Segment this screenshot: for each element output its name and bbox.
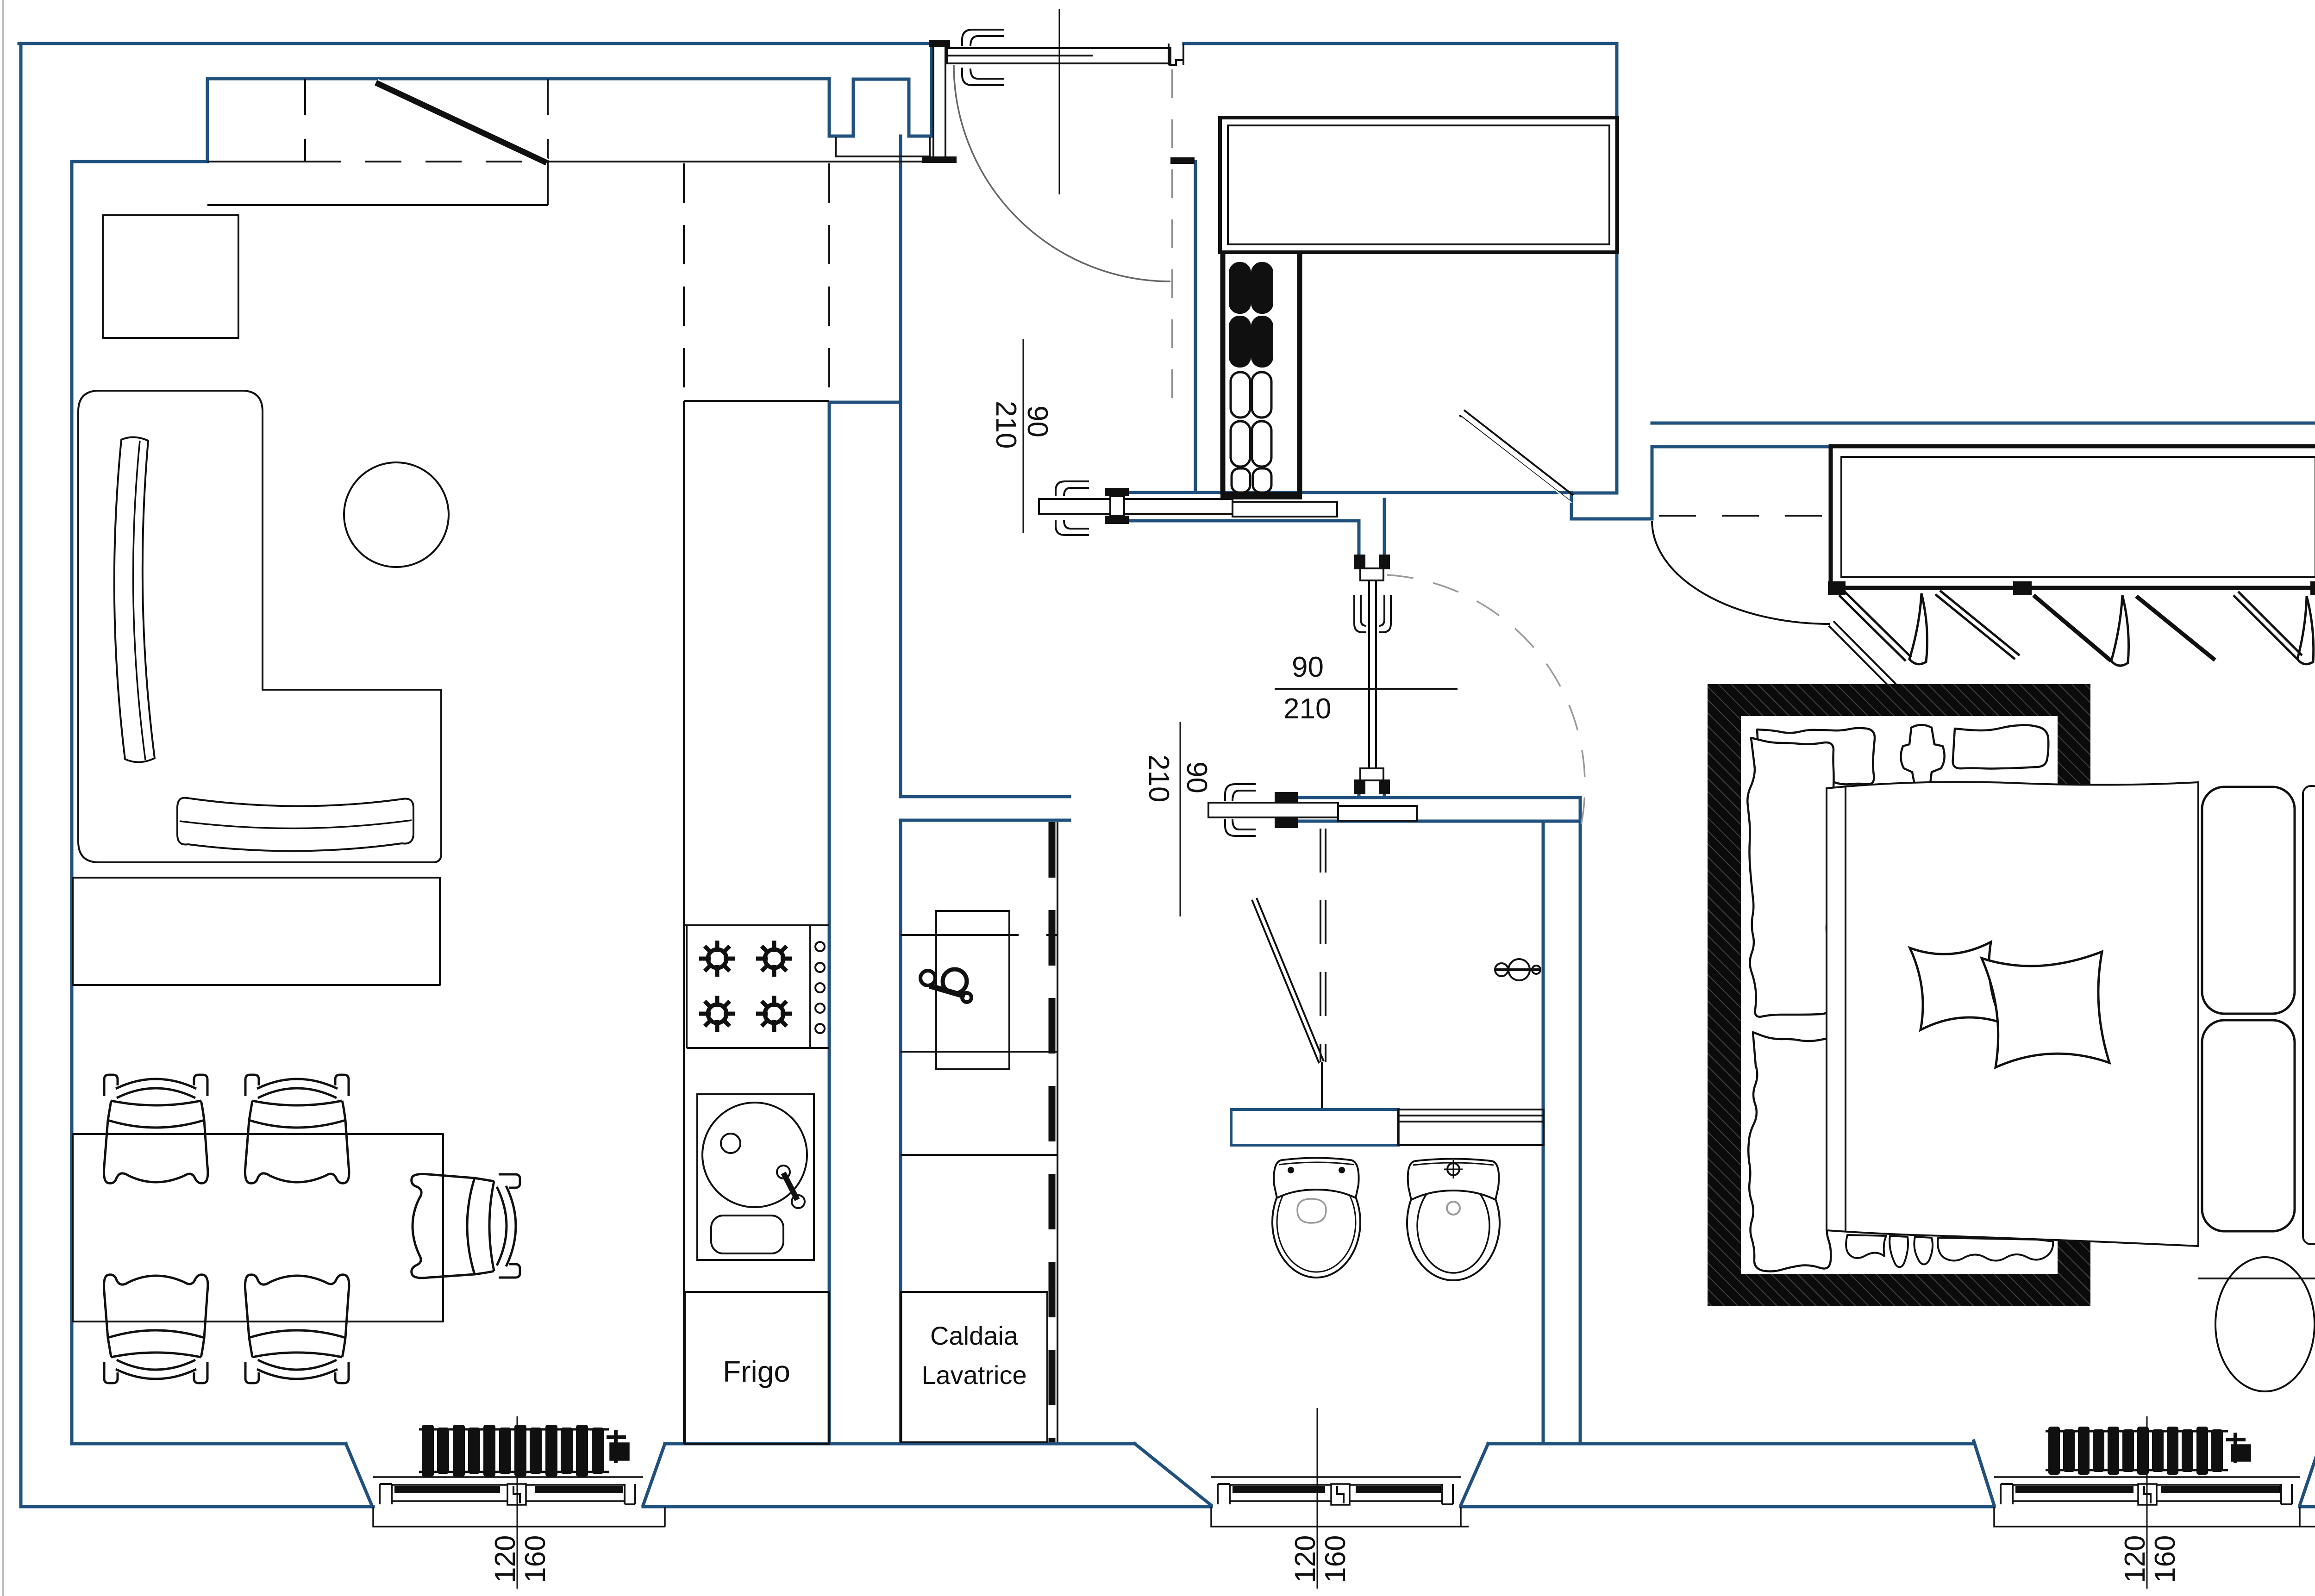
- svg-text:210: 210: [1283, 693, 1331, 725]
- svg-text:120: 120: [1289, 1535, 1321, 1583]
- svg-text:210: 210: [1143, 754, 1175, 802]
- svg-text:90: 90: [1292, 651, 1324, 683]
- svg-text:160: 160: [1320, 1535, 1351, 1583]
- svg-text:120: 120: [489, 1535, 521, 1583]
- svg-text:Frigo: Frigo: [723, 1355, 790, 1388]
- svg-text:160: 160: [519, 1535, 551, 1583]
- svg-text:Lavatrice: Lavatrice: [921, 1360, 1026, 1390]
- svg-text:120: 120: [2119, 1535, 2151, 1583]
- svg-text:90: 90: [1021, 405, 1053, 437]
- svg-text:210: 210: [990, 401, 1022, 449]
- svg-text:160: 160: [2149, 1535, 2181, 1583]
- svg-text:Caldaia: Caldaia: [930, 1321, 1019, 1350]
- svg-text:90: 90: [1181, 761, 1213, 793]
